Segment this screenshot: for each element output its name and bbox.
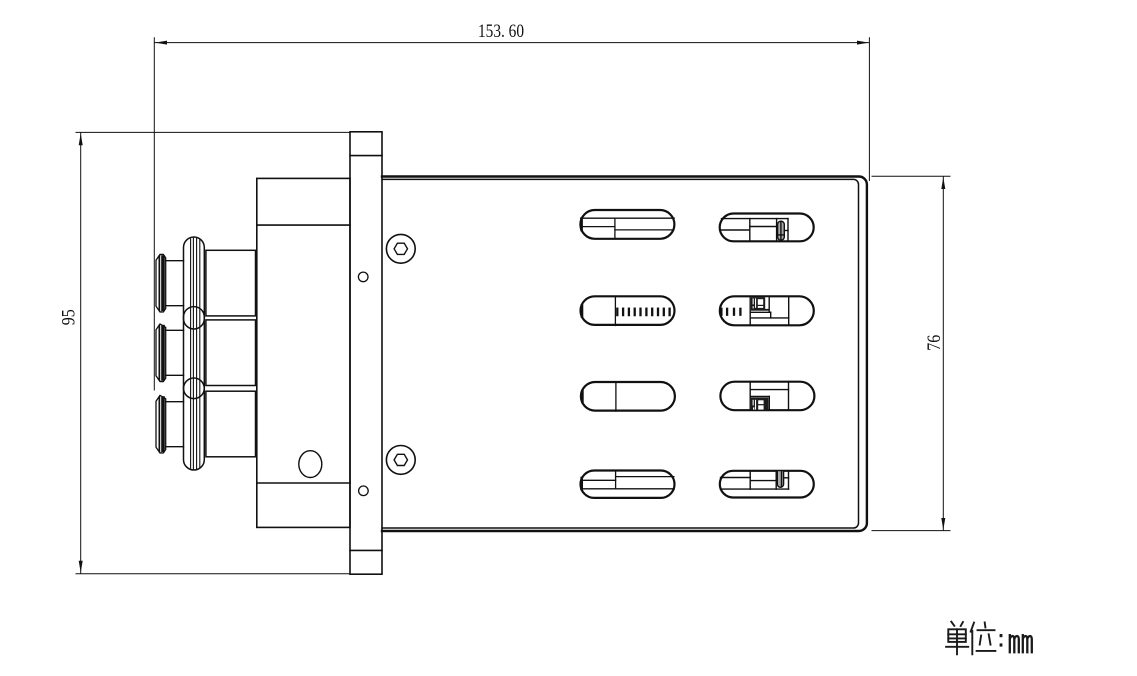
svg-text:153. 60: 153. 60 [478,21,524,42]
svg-text:76: 76 [924,335,945,351]
svg-text:95: 95 [59,309,80,325]
